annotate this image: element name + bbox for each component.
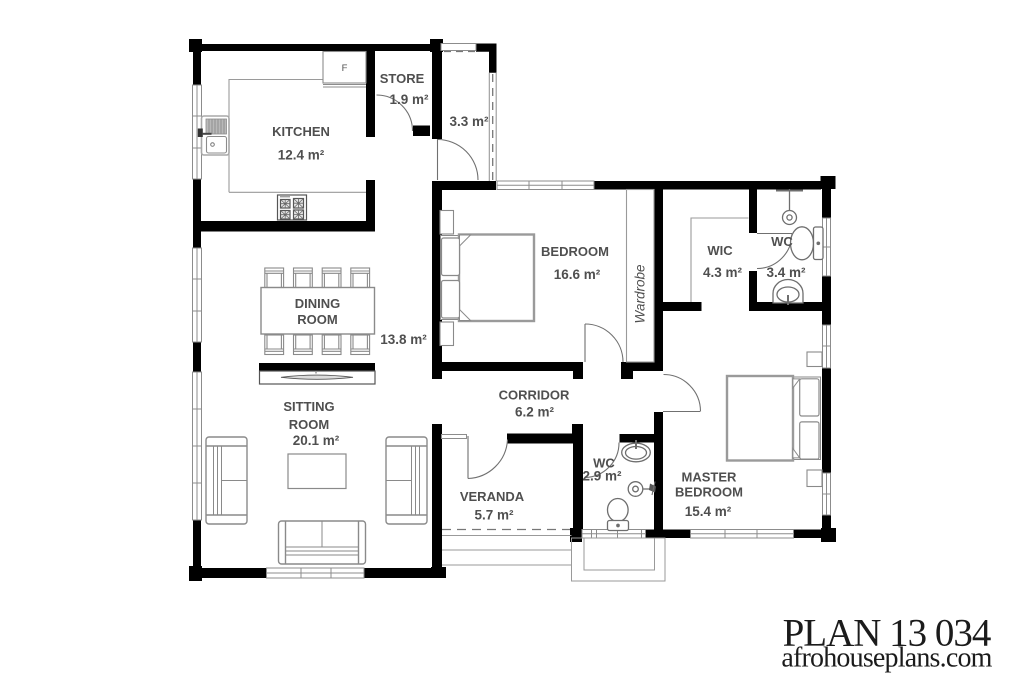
svg-text:BEDROOM: BEDROOM: [675, 485, 743, 500]
svg-text:KITCHEN: KITCHEN: [272, 124, 330, 139]
svg-text:ROOM: ROOM: [289, 417, 329, 432]
svg-text:13.8 m²: 13.8 m²: [380, 332, 427, 347]
svg-text:VERANDA: VERANDA: [460, 489, 525, 504]
svg-text:STORE: STORE: [380, 71, 425, 86]
svg-text:WIC: WIC: [707, 243, 733, 258]
svg-text:WC: WC: [771, 234, 793, 249]
svg-text:F: F: [342, 63, 348, 74]
svg-text:ROOM: ROOM: [297, 312, 337, 327]
svg-text:6.2 m²: 6.2 m²: [515, 405, 555, 420]
svg-text:CORRIDOR: CORRIDOR: [499, 388, 570, 403]
svg-text:SITTING: SITTING: [283, 399, 334, 414]
svg-text:16.6 m²: 16.6 m²: [554, 267, 601, 282]
svg-text:15.4 m²: 15.4 m²: [685, 504, 732, 519]
svg-text:20.1 m²: 20.1 m²: [293, 433, 340, 448]
svg-text:4.3 m²: 4.3 m²: [703, 265, 743, 280]
svg-text:BEDROOM: BEDROOM: [541, 244, 609, 259]
svg-text:DINING: DINING: [295, 296, 341, 311]
svg-text:5.7 m²: 5.7 m²: [474, 508, 514, 523]
svg-text:2.9 m²: 2.9 m²: [582, 469, 622, 484]
svg-text:afrohouseplans.com: afrohouseplans.com: [781, 643, 992, 674]
svg-text:1.9 m²: 1.9 m²: [389, 92, 429, 107]
svg-text:Wardrobe: Wardrobe: [633, 264, 648, 323]
svg-text:3.4 m²: 3.4 m²: [766, 265, 806, 280]
svg-text:12.4 m²: 12.4 m²: [278, 148, 325, 163]
svg-text:3.3 m²: 3.3 m²: [449, 114, 489, 129]
svg-text:MASTER: MASTER: [682, 470, 738, 485]
